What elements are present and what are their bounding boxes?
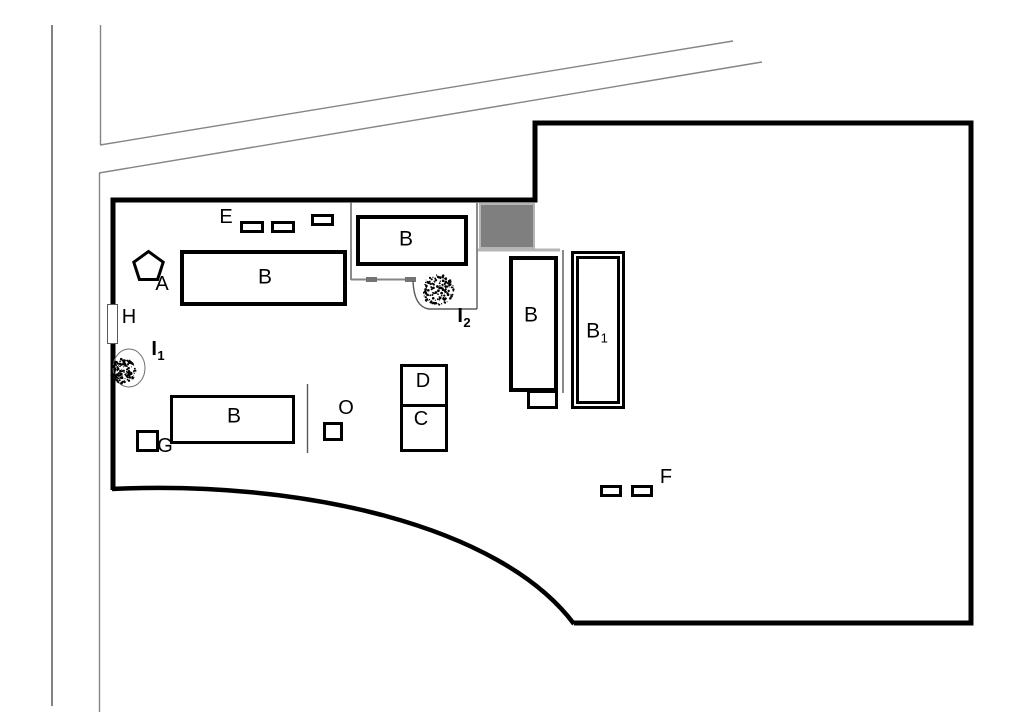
label-F: F — [660, 467, 672, 487]
label-D: D — [416, 371, 430, 391]
label-A: A — [155, 274, 168, 294]
label-H: H — [122, 307, 136, 327]
road-diagonal-lower — [99, 62, 762, 173]
label-B-main: B — [258, 267, 272, 288]
tree-I2-icon — [423, 274, 455, 305]
gray-block — [479, 203, 535, 249]
label-B-lower: B — [227, 406, 241, 427]
parcel-boundary-curve — [112, 488, 574, 624]
label-B-top: B — [399, 229, 413, 250]
building-B-right-annex — [527, 390, 558, 409]
road-diagonal-upper — [100, 41, 733, 145]
label-B-right: B — [524, 305, 538, 326]
label-C: C — [414, 409, 428, 429]
structure-E-1 — [240, 221, 264, 233]
structure-E-2 — [271, 221, 295, 233]
structure-G — [136, 430, 159, 452]
label-G: G — [157, 436, 173, 456]
label-B1: B1 — [586, 321, 608, 342]
structure-F-1 — [600, 485, 622, 497]
label-I1: I1 — [151, 339, 164, 359]
label-E: E — [219, 207, 232, 227]
structure-F-2 — [631, 485, 653, 497]
structure-O — [323, 422, 343, 441]
label-O: O — [338, 398, 354, 418]
site-plan: E A H I1 I2 G O F B B B B1 B D C — [0, 0, 1017, 712]
label-I2: I2 — [457, 306, 470, 326]
structure-E-3 — [311, 214, 334, 226]
structure-H — [107, 304, 118, 344]
